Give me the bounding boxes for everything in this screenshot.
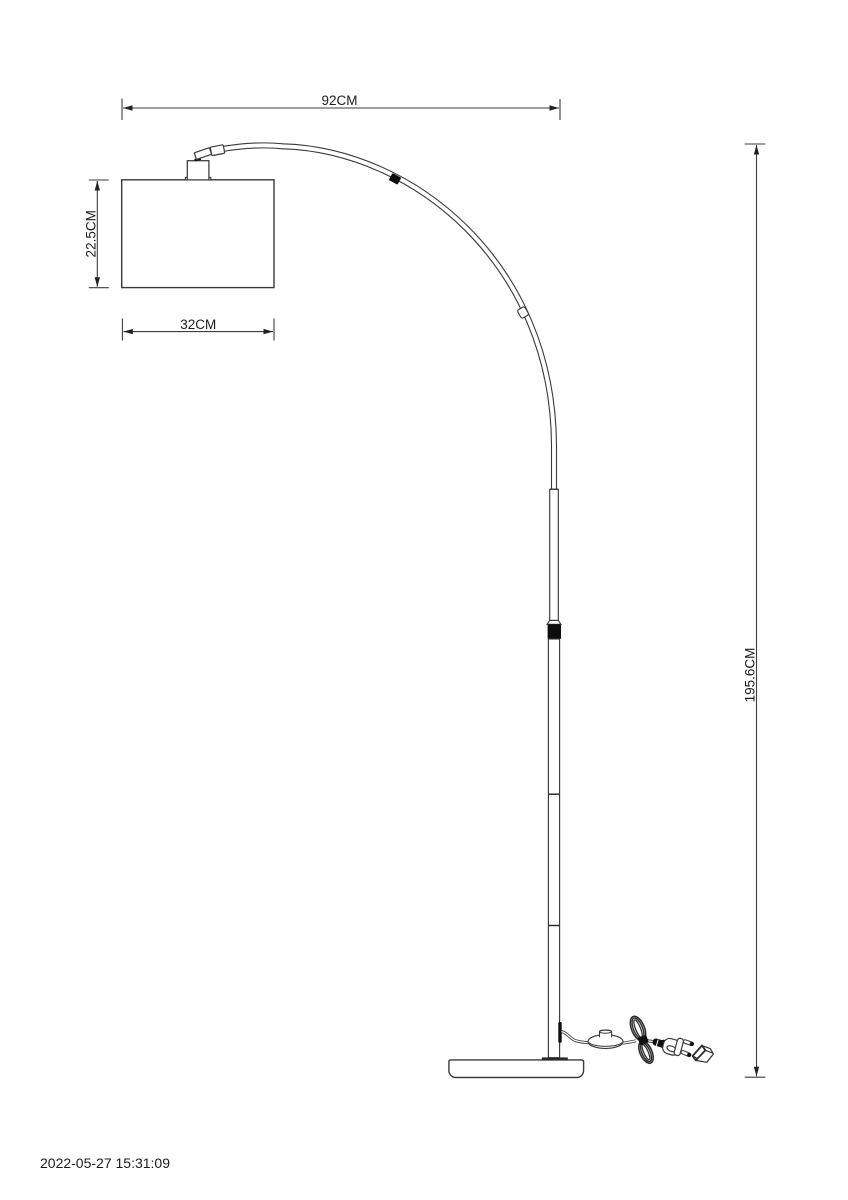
svg-text:32CM: 32CM [180,317,216,332]
svg-text:195.6CM: 195.6CM [743,648,758,703]
svg-text:92CM: 92CM [321,93,357,108]
svg-text:22.5CM: 22.5CM [84,210,99,257]
svg-text:2022-05-27 15:31:09: 2022-05-27 15:31:09 [40,1155,170,1171]
